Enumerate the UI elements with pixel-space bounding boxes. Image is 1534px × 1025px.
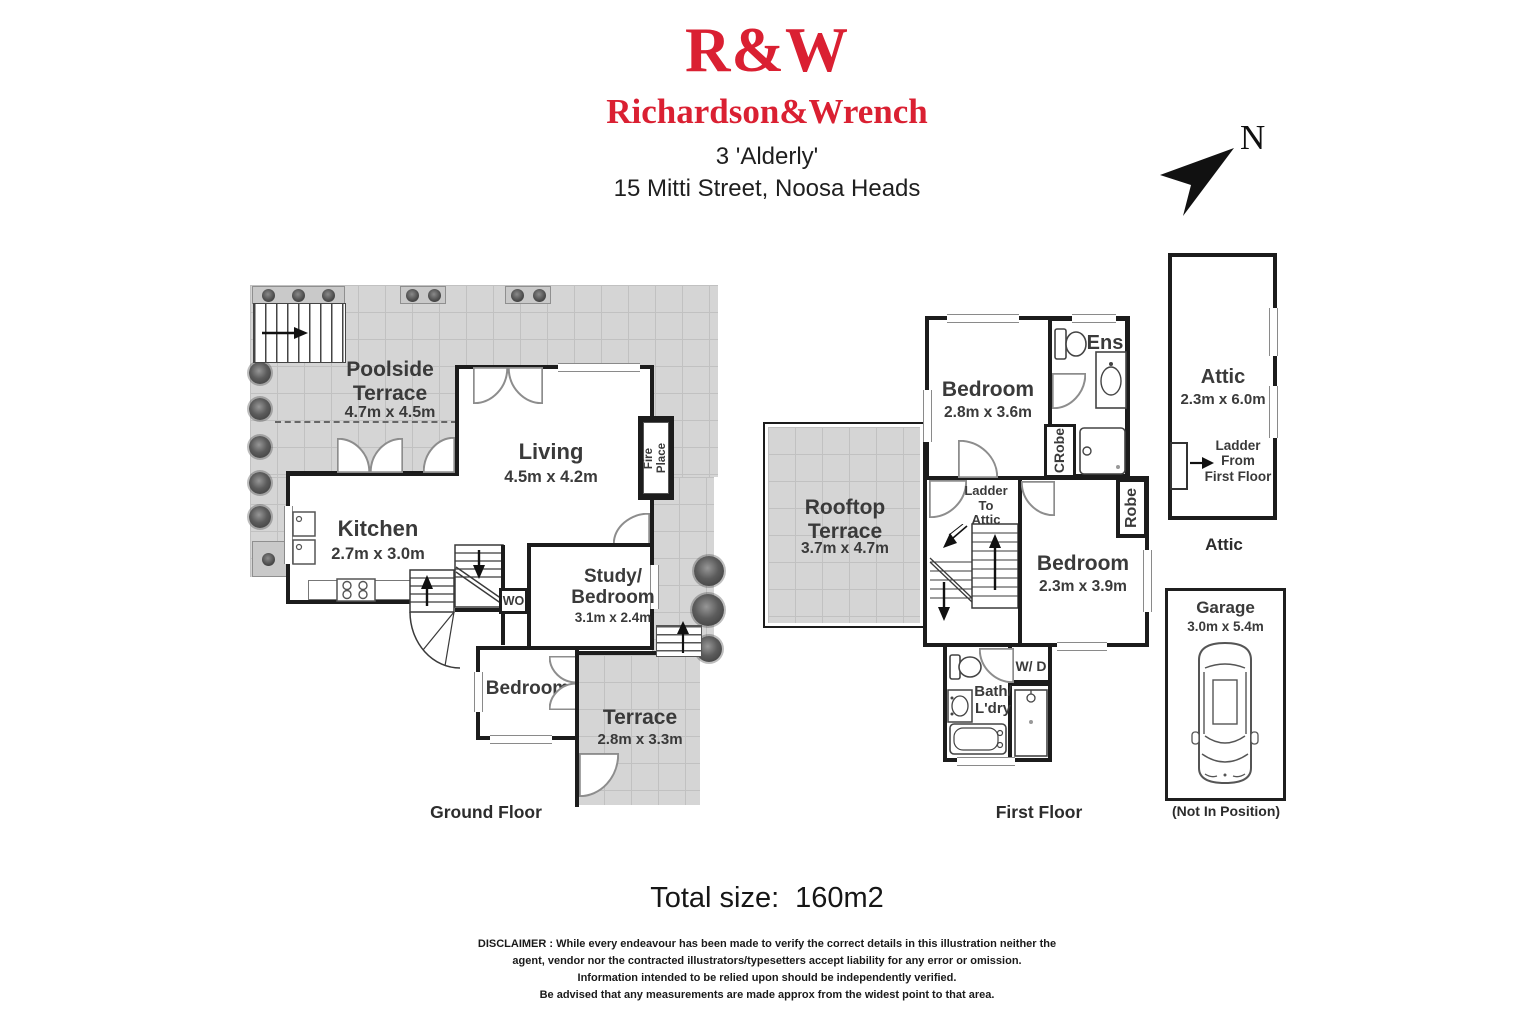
basin-icon [1094,350,1128,410]
room-dims-bedroom1: 2.8m x 3.6m [928,404,1048,422]
window [957,757,1015,766]
window [1269,308,1278,356]
shrub-icon [292,289,305,302]
door-arc [473,367,508,404]
room-dims-rooftop-terrace: 3.7m x 4.7m [795,540,895,558]
room-label-terrace: Terrace [590,706,690,730]
room-label-bath-laundry: Bath/ L'dry [958,684,1028,718]
toilet-icon [948,652,984,682]
robe1-symbol: C [1051,463,1067,473]
door-arc [1021,481,1055,516]
robe2: Robe [1116,478,1148,538]
room-dims-bedroom2: 2.3m x 3.9m [1023,578,1143,596]
wall [577,651,656,655]
room-label-living: Living [481,440,621,465]
washer-dryer-label: W/ D [1010,659,1052,675]
disclaimer-line4: Be advised that any measurements are mad… [0,989,1534,1001]
stair-direction-arrow-icon [676,619,690,655]
window [1072,314,1116,323]
planter-box [400,286,446,304]
door-arc [1052,373,1086,409]
door-arc [549,683,577,710]
total-size-value: 160m2 [795,882,884,914]
shrub-icon [428,289,441,302]
floor-label-ground: Ground Floor [411,803,561,823]
window [947,314,1019,323]
total-size: Total size:160m2 [0,882,1534,915]
fireplace-label: Fire Place [643,443,669,473]
total-size-label: Total size: [650,882,779,914]
door-arc [370,438,403,473]
planter-box [252,286,345,304]
disclaimer-line1: DISCLAIMER : While every endeavour has b… [0,938,1534,950]
ladder-to-attic-label: Ladder To Attic [948,484,1024,528]
window [490,735,552,744]
door-arc [508,367,543,404]
shrub-icon [692,594,724,626]
shrub-icon [262,553,275,566]
door-arc [337,438,370,473]
room-dims-study: 3.1m x 2.4m [553,610,673,625]
window [1143,550,1152,612]
door-arc [979,648,1014,683]
wall-oven: WO [499,588,528,614]
wall-oven-label: WO [503,594,525,608]
door-arc [958,440,998,478]
room-label-attic: Attic [1168,366,1278,389]
shower-icon [1078,426,1127,476]
room-dims-living: 4.5m x 4.2m [481,468,621,487]
room-label-bedroom1: Bedroom [928,378,1048,402]
north-arrow-icon [1158,146,1236,218]
shrub-icon [249,436,271,458]
disclaimer-line3: Information intended to be relied upon s… [0,972,1534,984]
shrub-icon [533,289,546,302]
shrub-icon [249,398,271,420]
shrub-icon [249,362,271,384]
shrub-icon [511,289,524,302]
bathtub-icon [948,722,1008,756]
window [1057,642,1107,651]
room-dims-garage: 3.0m x 5.4m [1165,619,1286,634]
room-label-study: Study/ Bedroom [553,566,673,609]
brand-wordmark: Richardson&Wrench [0,92,1534,132]
wall [455,608,505,612]
floor-label-first: First Floor [964,803,1114,823]
floorplan-page: R&W Richardson&Wrench 3 'Alderly' 15 Mit… [0,0,1534,1025]
robe2-label: Robe [1123,488,1141,528]
room-dims-poolside-terrace: 4.7m x 4.5m [300,404,480,422]
wall [923,478,927,647]
floor-label-attic: Attic [1168,535,1280,554]
fireplace: Fire Place [643,422,669,494]
robe1: CRobe [1044,424,1076,478]
shrub-icon [262,289,275,302]
door-arc [423,437,455,473]
room-dims-attic: 2.3m x 6.0m [1168,392,1278,409]
attic-ladder-hatch [1170,442,1188,490]
brand-logo: R&W [0,14,1534,87]
stair-direction-arrow-icon [260,325,310,341]
shrub-icon [406,289,419,302]
disclaimer-line2: agent, vendor nor the contracted illustr… [0,955,1534,967]
address-line2: 15 Mitti Street, Noosa Heads [0,175,1534,203]
room-dims-terrace: 2.8m x 3.3m [590,732,690,749]
garage-note: (Not In Position) [1150,804,1302,820]
car-icon [1191,638,1259,788]
shrub-icon [694,556,724,586]
toilet-icon [1053,326,1089,362]
shrub-icon [249,506,271,528]
wall [455,365,459,481]
room-label-poolside-terrace: Poolside Terrace [300,358,480,405]
robe1-label: Robe [1051,428,1067,463]
ladder-from-first-floor-label: Ladder From First Floor [1198,438,1278,484]
room-label-rooftop-terrace: Rooftop Terrace [795,496,895,543]
stove-icon [336,578,376,602]
shrub-icon [249,472,271,494]
door-arc [613,513,650,545]
room-label-garage: Garage [1165,598,1286,617]
address-line1: 3 'Alderly' [0,143,1534,171]
north-label: N [1240,118,1265,158]
kitchen-sink-icon [291,510,317,566]
planter-box [505,286,551,304]
room-label-bedroom2: Bedroom [1023,552,1143,576]
door-arc [579,753,619,797]
window [558,363,640,372]
door-arc [549,656,577,683]
shrub-icon [322,289,335,302]
